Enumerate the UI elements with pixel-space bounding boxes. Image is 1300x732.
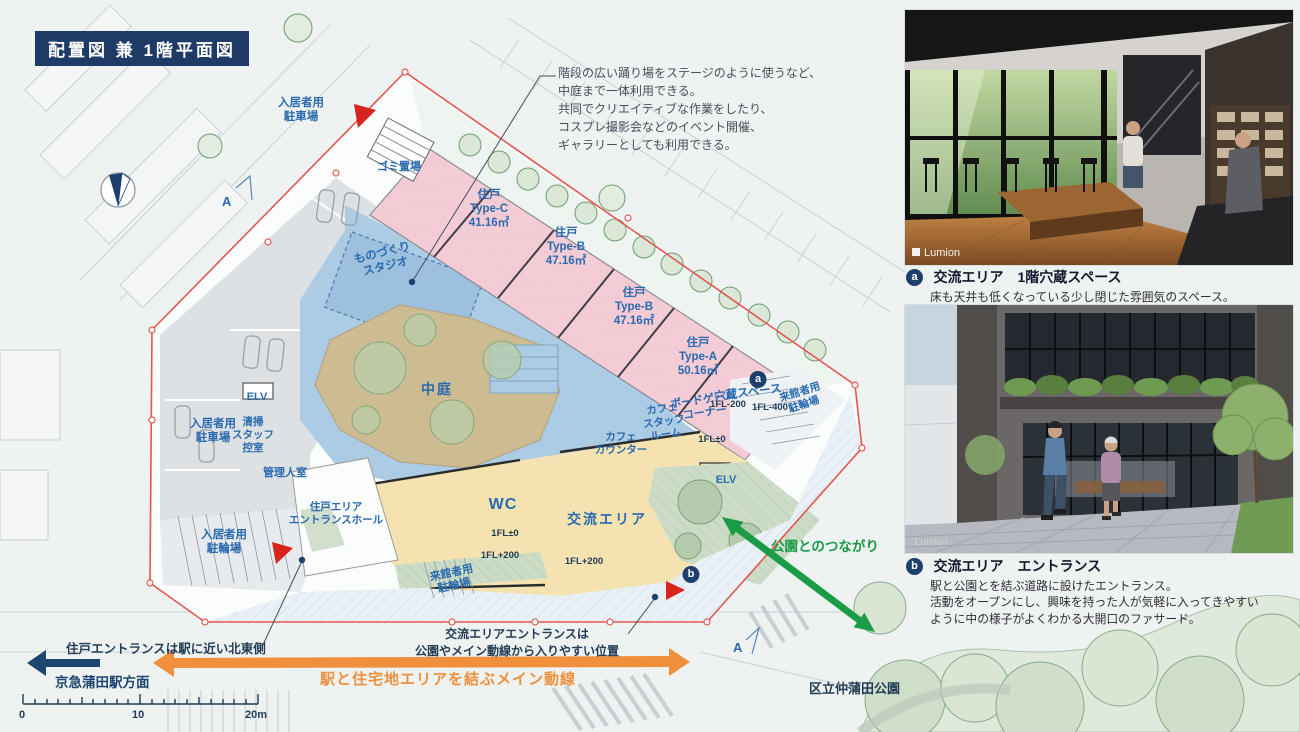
label-unit-type-b1: 住戸 Type-B 47.16㎡ xyxy=(546,226,586,268)
exchange-entrance-note: 交流エリアエントランスは 公園やメイン動線から入りやすい位置 xyxy=(408,625,626,659)
label-parking-north: 入居者用 駐車場 xyxy=(278,96,324,124)
north-compass xyxy=(101,173,135,207)
label-unit-type-a: 住戸 Type-A 50.16㎡ xyxy=(678,336,718,378)
page-title: 配置図 兼 1階平面図 xyxy=(35,31,249,66)
label-unit-type-b2: 住戸 Type-B 47.16㎡ xyxy=(614,286,654,328)
caption-b-title: 交流エリア エントランス xyxy=(933,556,1101,576)
main-flow-label: 駅と住宅地エリアを結ぶメイン動線 xyxy=(320,668,576,689)
unit-entrance-note: 住戸エントランスは駅に近い北東側 xyxy=(66,638,266,657)
park-name-label: 区立仲蒲田公園 xyxy=(809,678,900,697)
label-wc: WC xyxy=(489,495,518,515)
caption-a-desc: 床も天井も低くなっている少し閉じた雰囲気のスペース。 xyxy=(930,289,1296,305)
scale-10: 10 xyxy=(132,709,144,721)
caption-b-desc: 駅と公園とを結ぶ道路に設けたエントランス。 活動をオープンにし、興味を持った人が… xyxy=(930,578,1296,627)
photo-b-render: Lumion xyxy=(905,305,1293,553)
label-fl-200: 1FL-200 xyxy=(710,399,746,411)
caption-a-badge: a xyxy=(906,269,923,286)
scale-0: 0 xyxy=(19,709,25,721)
caption-a: a 交流エリア 1階穴蔵スペース 床も天井も低くなっている少し閉じた雰囲気のスペ… xyxy=(906,267,1296,305)
plan-badge-a: a xyxy=(750,371,767,388)
label-parking-west: 入居者用 駐車場 xyxy=(190,417,236,445)
label-caretaker: 管理人室 xyxy=(263,467,307,480)
label-fl-0-east: 1FL±0 xyxy=(698,434,725,446)
station-direction-label: 京急蒲田駅方面 xyxy=(55,671,150,691)
caption-a-title: 交流エリア 1階穴蔵スペース xyxy=(933,267,1121,287)
label-courtyard: 中庭 xyxy=(421,381,453,398)
park-link-label: 公園とのつながり xyxy=(771,535,879,555)
section-mark-top: A xyxy=(222,194,231,209)
label-cleaning-room: 清掃 スタッフ 控室 xyxy=(232,416,274,454)
label-garbage: ゴミ置場 xyxy=(377,161,421,174)
photo-cellar-space: Lumion xyxy=(905,10,1293,265)
label-exchange-area: 交流エリア xyxy=(567,511,647,528)
label-fl-plus200-e: 1FL+200 xyxy=(565,556,603,568)
label-entrance-hall: 住戸エリア エントランスホール xyxy=(289,501,383,527)
photo-entrance: Lumion xyxy=(905,305,1293,553)
scale-20: 20m xyxy=(245,709,267,721)
label-elv-units: ELV xyxy=(247,391,268,404)
section-mark-bottom: A xyxy=(733,640,742,655)
photo-a-render: Lumion xyxy=(905,10,1293,265)
presentation-board: 配置図 兼 1階平面図 階段の広い踊り場をステージのように使うなど、 中庭まで一… xyxy=(0,0,1300,732)
street-stripes xyxy=(168,690,289,732)
caption-b: b 交流エリア エントランス 駅と公園とを結ぶ道路に設けたエントランス。 活動を… xyxy=(906,556,1296,627)
plan-badge-b: b xyxy=(683,566,700,583)
label-fl-plus200-w: 1FL+200 xyxy=(481,550,519,562)
svg-text:Lumion: Lumion xyxy=(924,247,960,259)
label-unit-type-c: 住戸 Type-C 41.16㎡ xyxy=(469,188,509,230)
label-resident-bikes: 入居者用 駐輪場 xyxy=(201,528,247,556)
label-elv-exchange: ELV xyxy=(716,474,737,487)
label-fl-0-south: 1FL±0 xyxy=(491,528,518,540)
label-cafe-counter: カフェ カウンター xyxy=(595,431,648,457)
lumion-watermark-b: Lumion xyxy=(915,537,948,548)
stage-use-note: 階段の広い踊り場をステージのように使うなど、 中庭まで一体利用できる。 共同でク… xyxy=(558,64,898,154)
caption-b-badge: b xyxy=(906,558,923,575)
